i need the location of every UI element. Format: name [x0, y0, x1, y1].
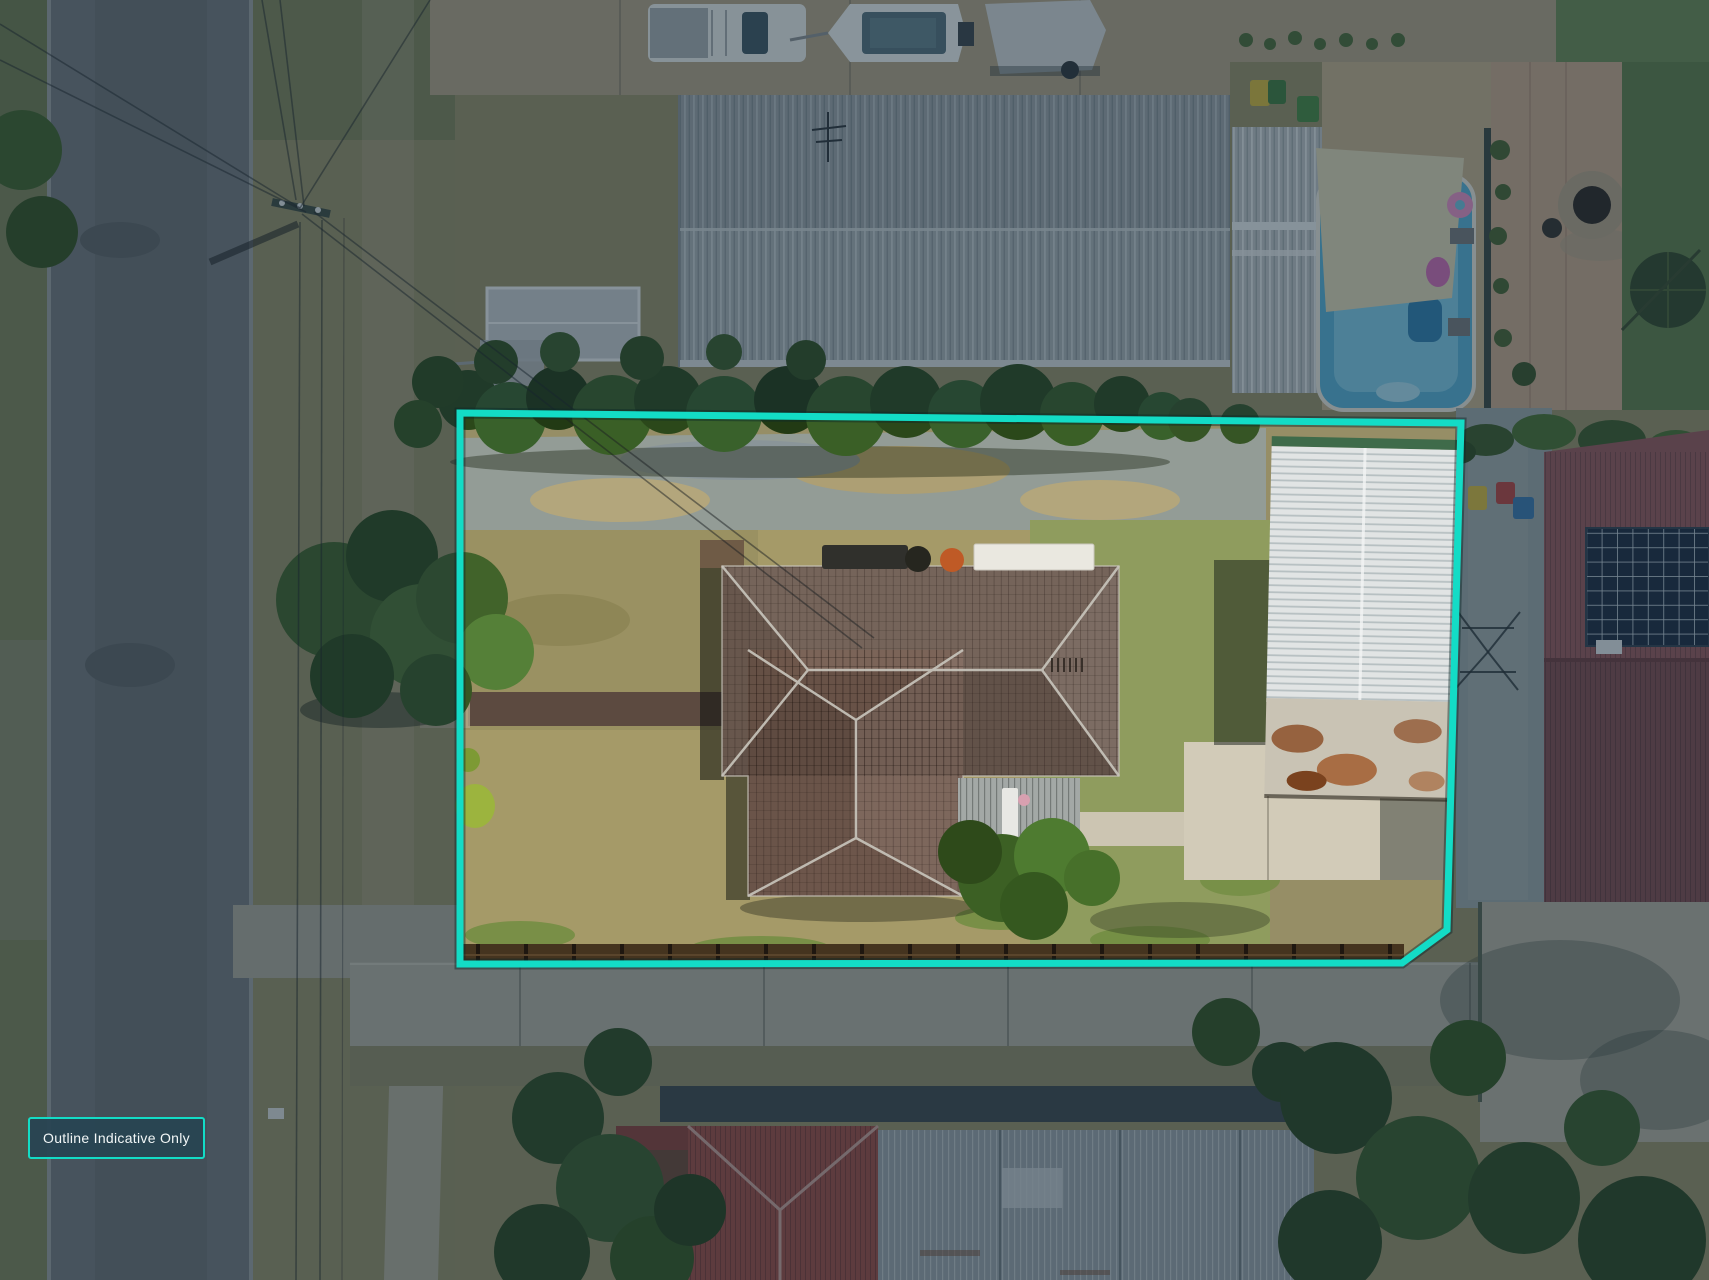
outline-disclaimer-badge: Outline Indicative Only: [28, 1117, 205, 1159]
aerial-photo-scene: [0, 0, 1709, 1280]
outline-disclaimer-label: Outline Indicative Only: [43, 1130, 190, 1146]
solar-hot-water: [974, 544, 1094, 570]
satellite-dish-icon: [940, 548, 964, 572]
rooftop-panel: [822, 545, 908, 569]
brick-pillar: [700, 540, 744, 568]
aerial-photo: Outline Indicative Only: [0, 0, 1709, 1280]
side-path: [1080, 812, 1184, 846]
property-shed: [1264, 436, 1460, 802]
roof-vent: [905, 546, 931, 572]
